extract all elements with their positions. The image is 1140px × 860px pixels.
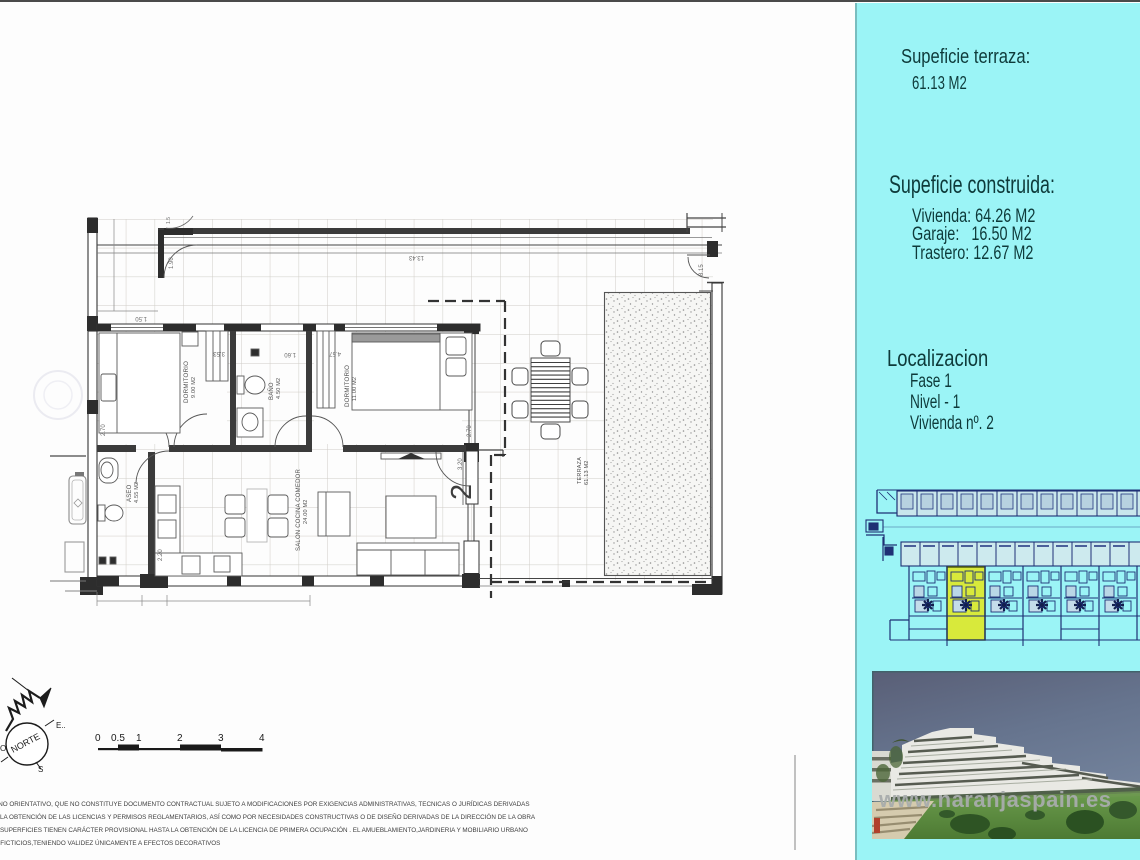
svg-text:E..: E.. (56, 721, 66, 730)
svg-text:8.15: 8.15 (699, 264, 705, 276)
svg-text:ASEO: ASEO (127, 484, 133, 502)
svg-text:O: O (0, 744, 6, 753)
svg-text:4.57: 4.57 (329, 350, 341, 356)
svg-text:3: 3 (218, 733, 224, 744)
svg-text:4.55 M2: 4.55 M2 (134, 482, 140, 503)
svg-text:BAÑO: BAÑO (268, 382, 275, 400)
svg-text:2.20: 2.20 (158, 549, 164, 561)
svg-text:2.70: 2.70 (101, 424, 107, 436)
svg-text:TERRAZA: TERRAZA (577, 457, 583, 484)
svg-text:9.00 M2: 9.00 M2 (191, 377, 197, 398)
svg-text:0.5: 0.5 (111, 733, 125, 744)
svg-text:2.70: 2.70 (467, 425, 473, 437)
svg-text:3.20: 3.20 (458, 458, 464, 470)
svg-text:0: 0 (95, 733, 101, 744)
svg-text:1: 1 (136, 733, 142, 744)
svg-text:4: 4 (259, 733, 265, 744)
svg-text:1.90: 1.90 (169, 257, 175, 269)
svg-text:1.60: 1.60 (284, 351, 296, 357)
svg-text:61.13 M2: 61.13 M2 (584, 460, 590, 485)
svg-text:11.00 M2: 11.00 M2 (352, 377, 358, 401)
svg-text:1.50: 1.50 (135, 315, 147, 321)
svg-text:1.5: 1.5 (166, 217, 172, 224)
svg-text:13.43: 13.43 (408, 254, 424, 260)
svg-text:24.00 M2: 24.00 M2 (303, 499, 309, 524)
svg-text:DORMITORIO: DORMITORIO (183, 361, 190, 403)
svg-text:2: 2 (446, 484, 478, 500)
svg-text:S: S (38, 765, 43, 774)
svg-text:DORMITORIO: DORMITORIO (344, 365, 351, 407)
svg-text:2: 2 (177, 733, 183, 744)
svg-text:4.50 M2: 4.50 M2 (276, 378, 282, 399)
svg-text:SALON COCINA COMEDOR: SALON COCINA COMEDOR (296, 469, 302, 551)
svg-text:3.53: 3.53 (213, 350, 225, 356)
